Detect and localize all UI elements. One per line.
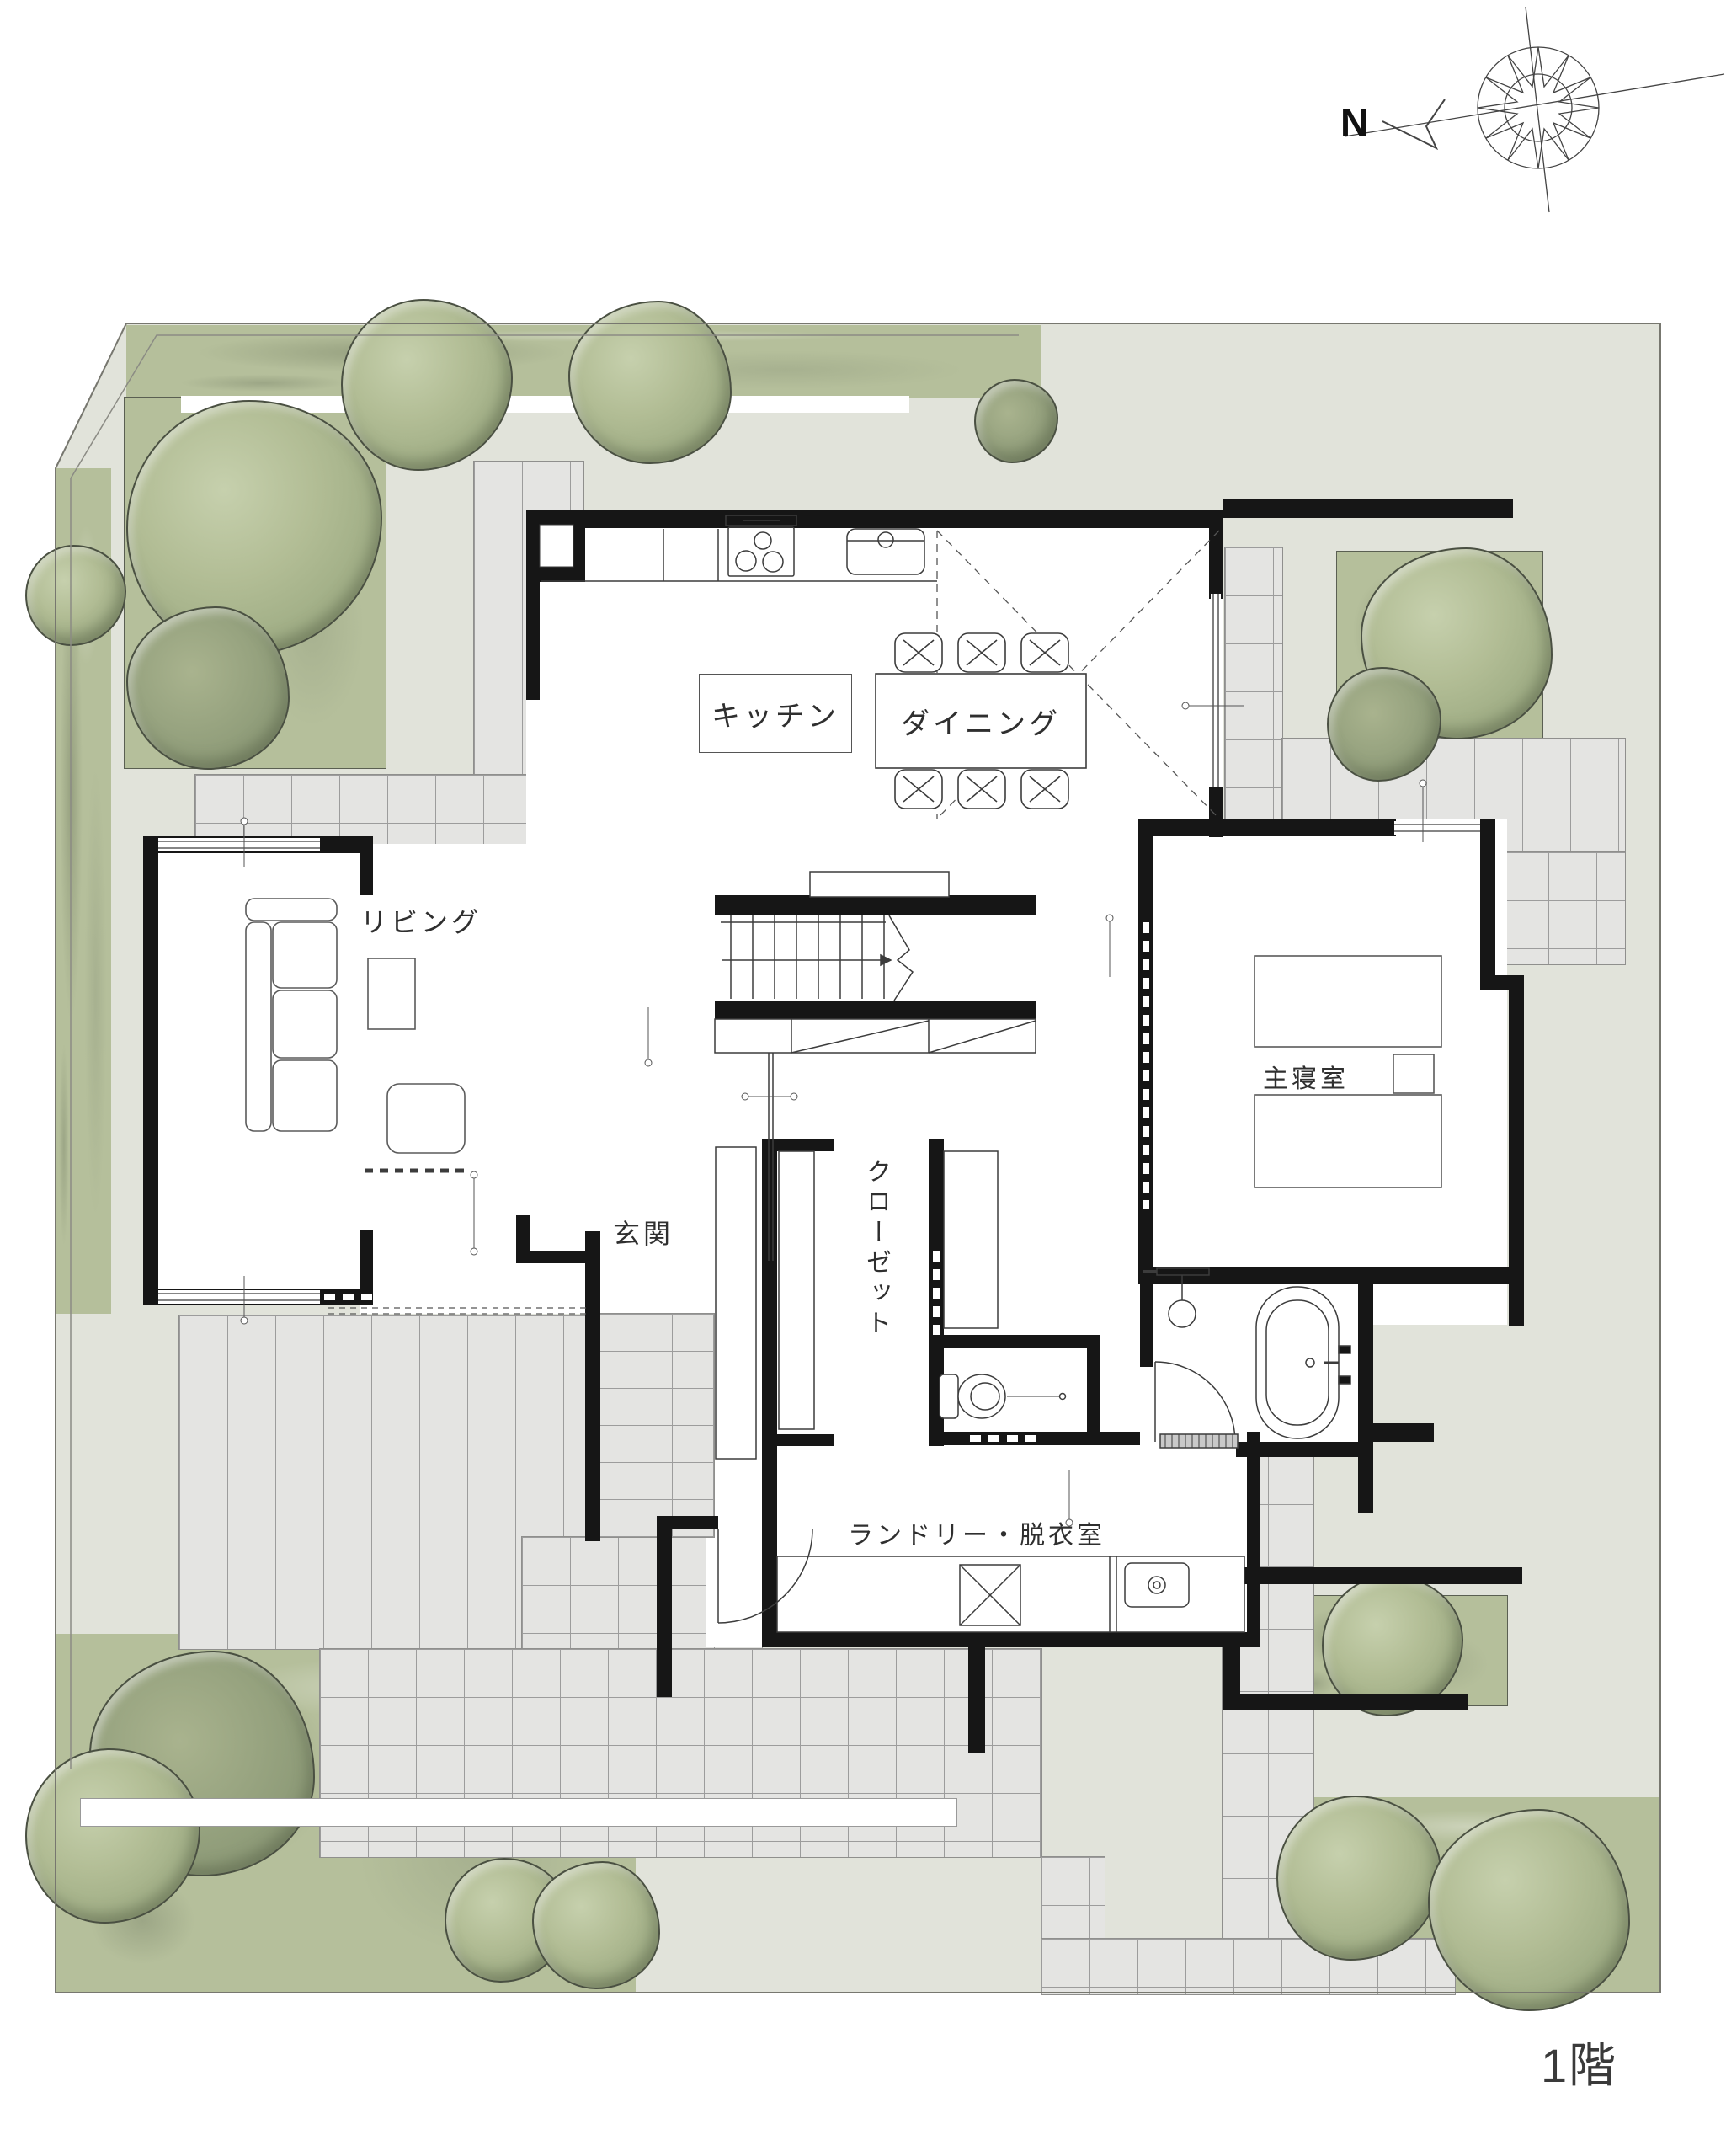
paved-band-west [195,775,583,844]
paved-connector [1041,1857,1105,1939]
floor-living [143,836,373,1305]
floor-title-text: 1階 [1541,2039,1617,2092]
room-label-entrance: 玄関 [613,1213,674,1251]
compass-icon [1345,7,1724,212]
paved-strip-east [1225,547,1282,852]
compass-north-text: N [1340,100,1372,144]
floor-plan-canvas: キッチン ダイニング リビング 玄関 クローゼット 主寝室 ランドリー・脱衣室 … [0,0,1726,2156]
room-label-living: リビング [360,901,482,940]
floor-kitchen-dining [526,510,1223,844]
closet-label-text: クローゼット [862,1158,890,1340]
room-label-kitchen: キッチン [699,674,852,753]
room-label-master-bedroom: 主寝室 [1263,1058,1349,1095]
floor-title: 1階 [1541,2028,1617,2096]
tree-symbol [126,606,290,770]
tree-symbol [532,1861,660,1989]
room-label-laundry: ランドリー・脱衣室 [783,1514,1170,1551]
garden-wall-white [80,1798,957,1827]
genkan-tile-floor [589,1314,714,1537]
room-label-dining: ダイニング [876,674,1086,768]
compass-north-label: N [1340,99,1372,145]
living-label-text: リビング [360,907,482,937]
entrance-label-text: 玄関 [613,1219,674,1249]
laundry-label-text: ランドリー・脱衣室 [848,1522,1105,1550]
dining-label-text: ダイニング [901,701,1061,742]
room-label-closet: クローゼット [857,1158,894,1436]
floor-hall-upper [583,821,1159,844]
kitchen-label-text: キッチン [711,693,839,734]
floor-bath-toilet [947,1267,1372,1457]
bedroom-label-text: 主寝室 [1263,1065,1349,1093]
tree-symbol [568,301,732,464]
